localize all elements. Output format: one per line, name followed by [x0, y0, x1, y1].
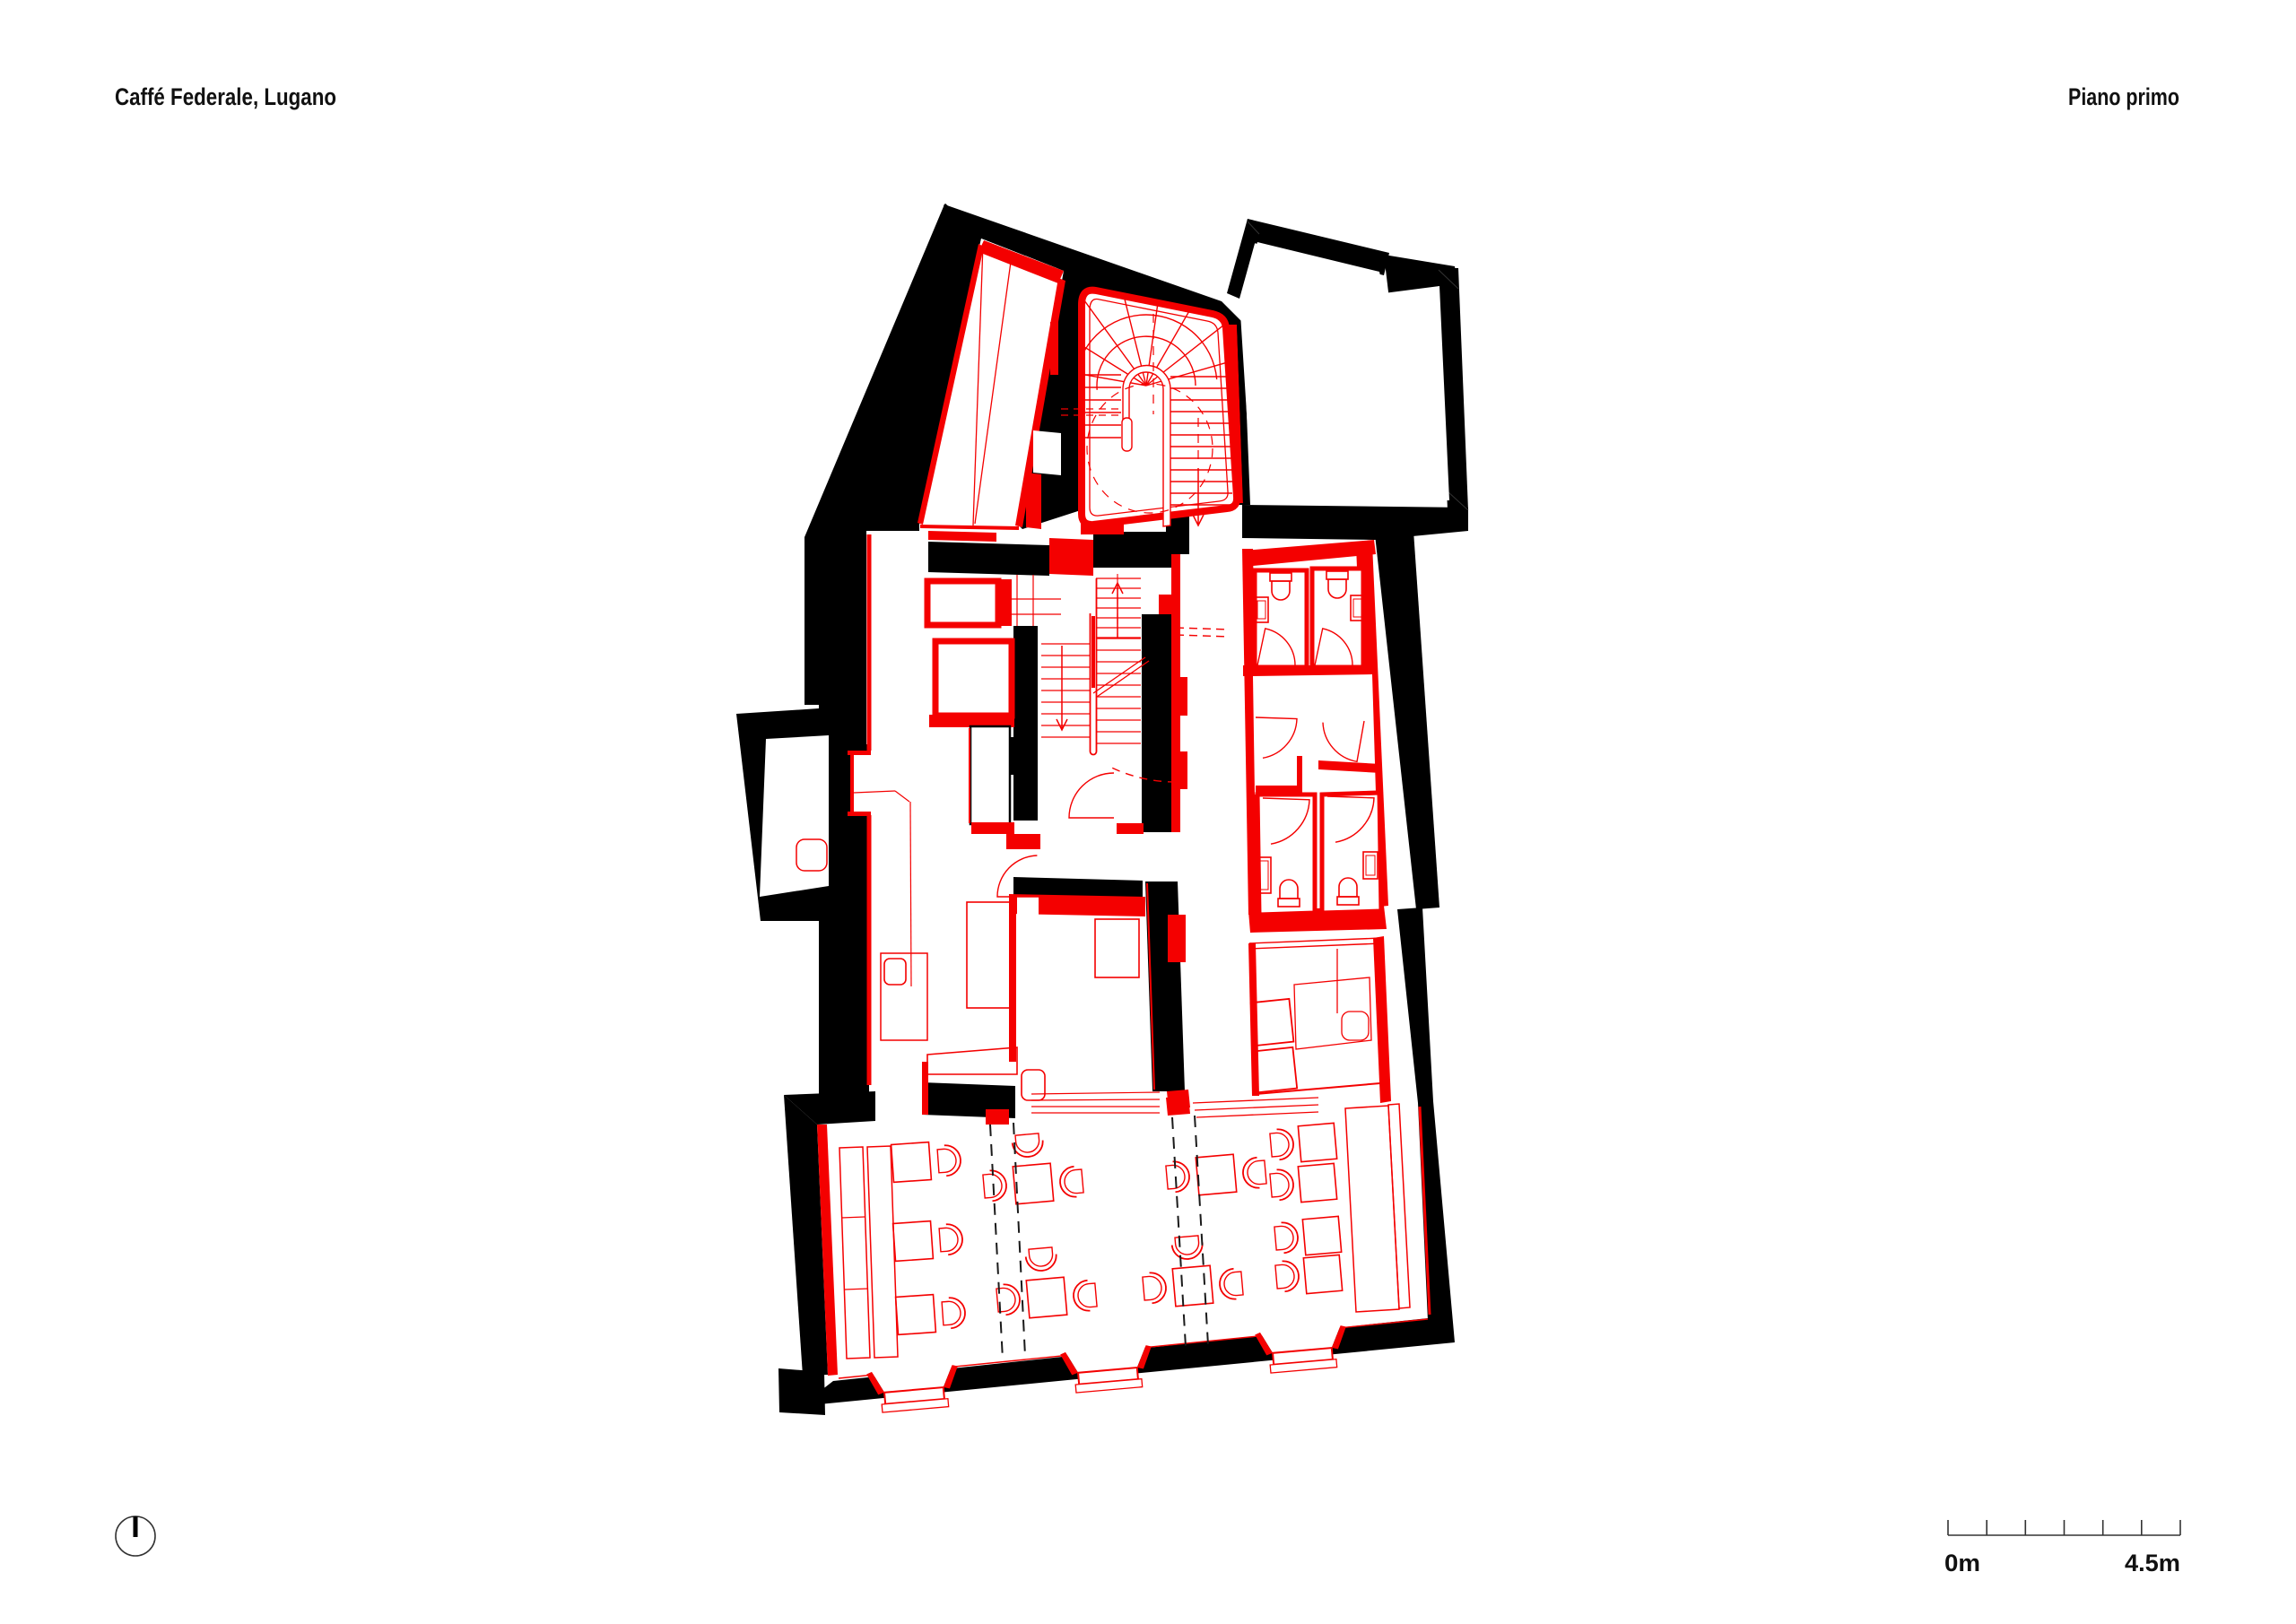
svg-text:0m: 0m — [1944, 1550, 1980, 1576]
svg-text:4.5m: 4.5m — [2125, 1550, 2180, 1576]
svg-text:Piano primo: Piano primo — [2068, 83, 2179, 110]
svg-text:Caffé Federale, Lugano: Caffé Federale, Lugano — [115, 83, 336, 110]
